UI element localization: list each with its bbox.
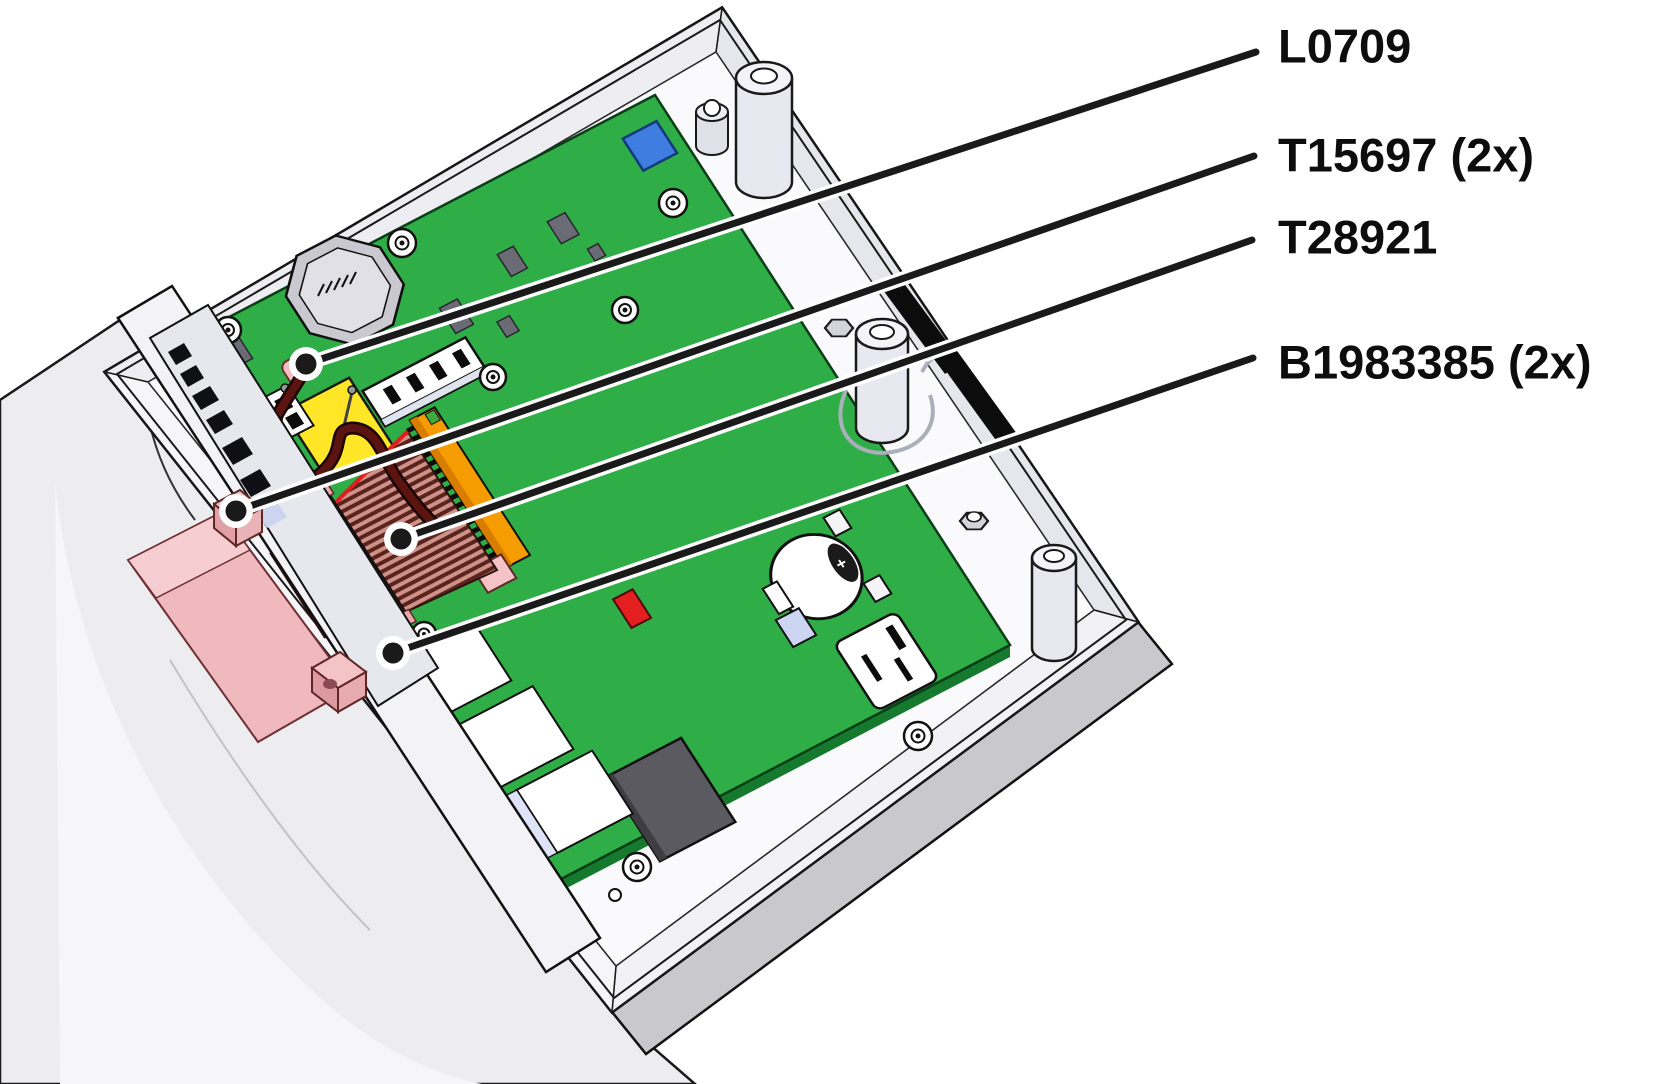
hex-nut: [960, 512, 988, 530]
device-illustration: +: [0, 0, 1659, 1084]
hex-nut: [825, 320, 853, 337]
standoff-boss-top: [736, 62, 792, 198]
screw-boss-small: [696, 100, 728, 155]
screw: [623, 853, 651, 881]
screw: [612, 297, 638, 323]
standoff-boss-bottom-right: [1032, 545, 1076, 661]
screw: [904, 722, 932, 750]
callout-label-t28921: T28921: [1278, 211, 1437, 264]
screw: [480, 364, 506, 390]
callout-label-l0709: L0709: [1278, 20, 1411, 73]
screw: [659, 189, 687, 217]
callout-label-t15697: T15697 (2x): [1278, 129, 1534, 182]
callout-label-b1983385: B1983385 (2x): [1278, 336, 1592, 389]
pcb-hole: [609, 889, 621, 901]
screw: [388, 229, 416, 257]
figure-canvas: +: [0, 0, 1659, 1084]
